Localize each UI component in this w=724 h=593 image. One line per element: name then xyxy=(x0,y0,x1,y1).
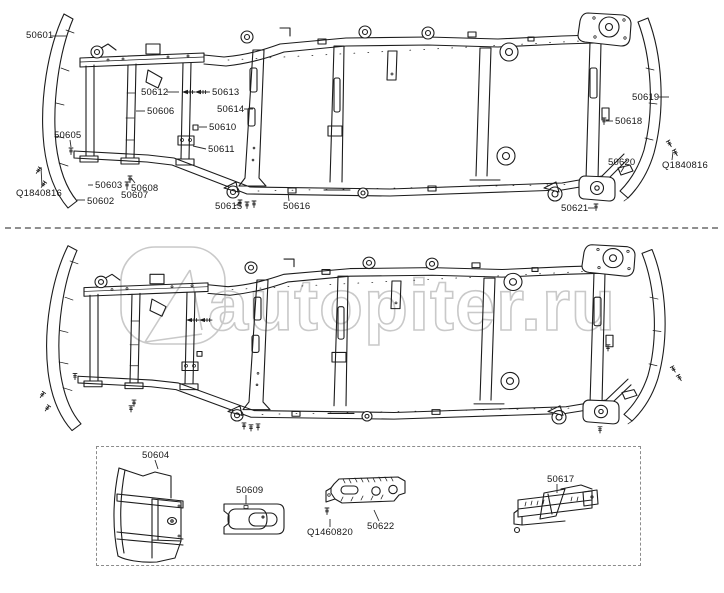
leader-line-50611 xyxy=(193,146,206,149)
part-label-Q1840816: Q1840816 xyxy=(16,189,62,199)
part-label-50621: 50621 xyxy=(561,204,588,214)
leader-line-50604 xyxy=(155,460,158,469)
part-label-50619: 50619 xyxy=(632,93,659,103)
parts-diagram-page: { "page": { "background": "#ffffff", "in… xyxy=(0,0,724,593)
leader-line-50616 xyxy=(288,192,289,201)
part-label-50604: 50604 xyxy=(142,451,169,461)
part-labels-layer: 5060150605Q18408165060350602506085060750… xyxy=(0,0,724,593)
part-label-50602: 50602 xyxy=(87,197,114,207)
part-label-50616: 50616 xyxy=(283,202,310,212)
part-label-Q1840816: Q1840816 xyxy=(662,161,708,171)
part-label-50606: 50606 xyxy=(147,107,174,117)
leader-line-Q1840816 xyxy=(672,152,673,160)
leader-line-50605 xyxy=(70,140,71,147)
part-label-50622: 50622 xyxy=(367,522,394,532)
part-label-50615: 50615 xyxy=(215,202,242,212)
part-label-50605: 50605 xyxy=(54,131,81,141)
part-label-50614: 50614 xyxy=(217,105,244,115)
leader-line-50622 xyxy=(374,510,379,521)
part-label-50620: 50620 xyxy=(608,158,635,168)
leader-line-Q1840816 xyxy=(41,167,42,187)
leader-lines xyxy=(0,0,724,593)
part-label-50617: 50617 xyxy=(547,475,574,485)
part-label-50613: 50613 xyxy=(212,88,239,98)
part-label-50607: 50607 xyxy=(121,191,148,201)
part-label-50609: 50609 xyxy=(236,486,263,496)
part-label-50618: 50618 xyxy=(615,117,642,127)
part-label-50612: 50612 xyxy=(141,88,168,98)
part-label-Q1460820: Q1460820 xyxy=(307,528,353,538)
part-label-50601: 50601 xyxy=(26,31,53,41)
part-label-50603: 50603 xyxy=(95,181,122,191)
part-label-50610: 50610 xyxy=(209,123,236,133)
part-label-50611: 50611 xyxy=(208,145,235,155)
